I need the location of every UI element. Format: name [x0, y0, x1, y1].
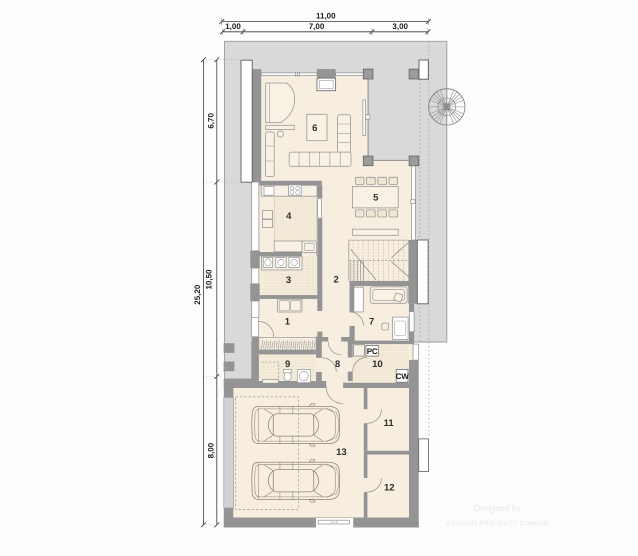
- svg-text:3: 3: [286, 275, 291, 286]
- svg-text:9: 9: [285, 359, 290, 370]
- svg-text:ARCHON PROJEKTY DOMOW: ARCHON PROJEKTY DOMOW: [446, 521, 549, 528]
- svg-text:PC: PC: [367, 347, 378, 356]
- svg-text:CW: CW: [396, 372, 410, 381]
- svg-text:6,70: 6,70: [207, 113, 216, 129]
- svg-text:1,00: 1,00: [225, 22, 241, 31]
- svg-text:8,00: 8,00: [207, 442, 216, 458]
- svg-text:10,50: 10,50: [204, 269, 213, 290]
- svg-text:6: 6: [312, 123, 317, 134]
- svg-text:5: 5: [373, 193, 379, 204]
- svg-text:3,00: 3,00: [392, 22, 408, 31]
- svg-text:12: 12: [384, 483, 395, 494]
- svg-text:1: 1: [285, 316, 291, 327]
- svg-text:13: 13: [336, 447, 347, 458]
- svg-text:2: 2: [334, 274, 339, 285]
- svg-text:7,00: 7,00: [309, 22, 325, 31]
- svg-text:11: 11: [384, 418, 395, 429]
- svg-text:7: 7: [369, 317, 374, 328]
- svg-text:Designed by: Designed by: [472, 504, 521, 514]
- svg-text:8: 8: [335, 359, 340, 370]
- svg-text:25,20: 25,20: [193, 284, 202, 305]
- svg-text:10: 10: [372, 359, 383, 370]
- svg-text:4: 4: [286, 211, 292, 222]
- svg-text:11,00: 11,00: [316, 11, 336, 20]
